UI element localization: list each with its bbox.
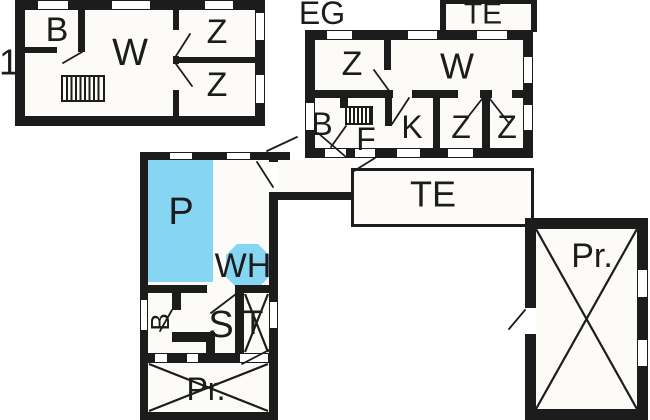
window	[638, 270, 647, 297]
floor-number-label: 1	[0, 42, 19, 83]
door-swing-icon	[267, 137, 297, 151]
window	[327, 31, 352, 39]
wall	[148, 285, 207, 293]
window	[408, 31, 437, 39]
wall	[637, 218, 648, 420]
wall	[512, 90, 523, 98]
room-label-living: W	[440, 46, 474, 87]
wall	[15, 116, 265, 126]
room-label-z2: Z	[207, 66, 228, 104]
window	[270, 302, 277, 328]
room-label-living: W	[112, 32, 148, 74]
wall	[172, 293, 181, 310]
room-label-z1: Z	[342, 45, 363, 83]
door-opening	[187, 354, 198, 362]
outbuilding-plan: Pr.	[509, 218, 648, 420]
wall	[173, 56, 179, 64]
wall	[315, 90, 393, 98]
wall	[140, 152, 278, 160]
door-opening	[525, 308, 536, 334]
window	[638, 340, 647, 366]
wall	[278, 152, 290, 160]
wall	[275, 192, 353, 200]
room-label-technic: T	[243, 304, 264, 342]
window	[227, 153, 250, 159]
room-label-pool: P	[168, 191, 193, 233]
pool-house-plan: P WH B S T Pr.	[140, 152, 278, 420]
door-swing-icon	[509, 310, 525, 329]
window	[448, 149, 473, 157]
window	[112, 1, 150, 9]
wall	[140, 412, 278, 420]
upper-floor-plan: 1 B W Z Z	[0, 0, 265, 126]
wall	[173, 10, 179, 30]
wall	[531, 0, 537, 32]
room-label-z3: Z	[497, 109, 517, 145]
wall	[480, 90, 492, 98]
room-label-z2: Z	[451, 109, 471, 145]
wall	[269, 152, 278, 420]
room-label-z1: Z	[207, 13, 228, 51]
window	[256, 75, 264, 103]
window	[524, 105, 532, 130]
wall	[385, 98, 392, 126]
room-label-pr: Pr.	[571, 237, 613, 275]
floor-plan-page: 1 B W Z Z	[0, 0, 650, 420]
wall	[179, 57, 255, 63]
wall	[235, 285, 269, 293]
door-opening	[325, 149, 346, 157]
room-label-whirlpool: WH	[215, 247, 272, 285]
wall	[78, 10, 85, 52]
wall	[523, 30, 533, 158]
wall	[482, 98, 490, 148]
wall	[412, 90, 458, 98]
room-label-hall: F	[356, 121, 376, 157]
terrace-top-label: TE	[464, 0, 502, 31]
room-label-sauna: S	[208, 304, 233, 346]
room-label-bath: B	[311, 106, 332, 142]
window	[170, 153, 192, 159]
stairs-icon	[62, 76, 104, 101]
door-opening	[155, 354, 167, 362]
corridor-area	[269, 160, 353, 192]
floor-plan-drawing: 1 B W Z Z	[0, 0, 650, 420]
wall	[525, 218, 648, 229]
wall	[140, 152, 148, 420]
window	[397, 149, 420, 157]
wall	[433, 98, 440, 148]
window	[524, 57, 532, 83]
window	[256, 13, 264, 40]
window	[205, 1, 233, 9]
room-label-kitchen: K	[401, 109, 422, 145]
room-label-bath: B	[145, 313, 175, 330]
wall	[525, 409, 648, 420]
window	[477, 31, 507, 39]
room-label-pr: Pr.	[186, 371, 225, 407]
terrace-main-label: TE	[410, 174, 456, 215]
ground-floor-plan: EG TE Z W B F K Z Z TE	[267, 0, 537, 226]
floor-name-label: EG	[299, 0, 345, 31]
window	[38, 1, 68, 9]
room-label-bath: B	[46, 11, 69, 49]
wall	[384, 40, 391, 70]
wall	[173, 90, 179, 116]
wall	[440, 0, 446, 32]
